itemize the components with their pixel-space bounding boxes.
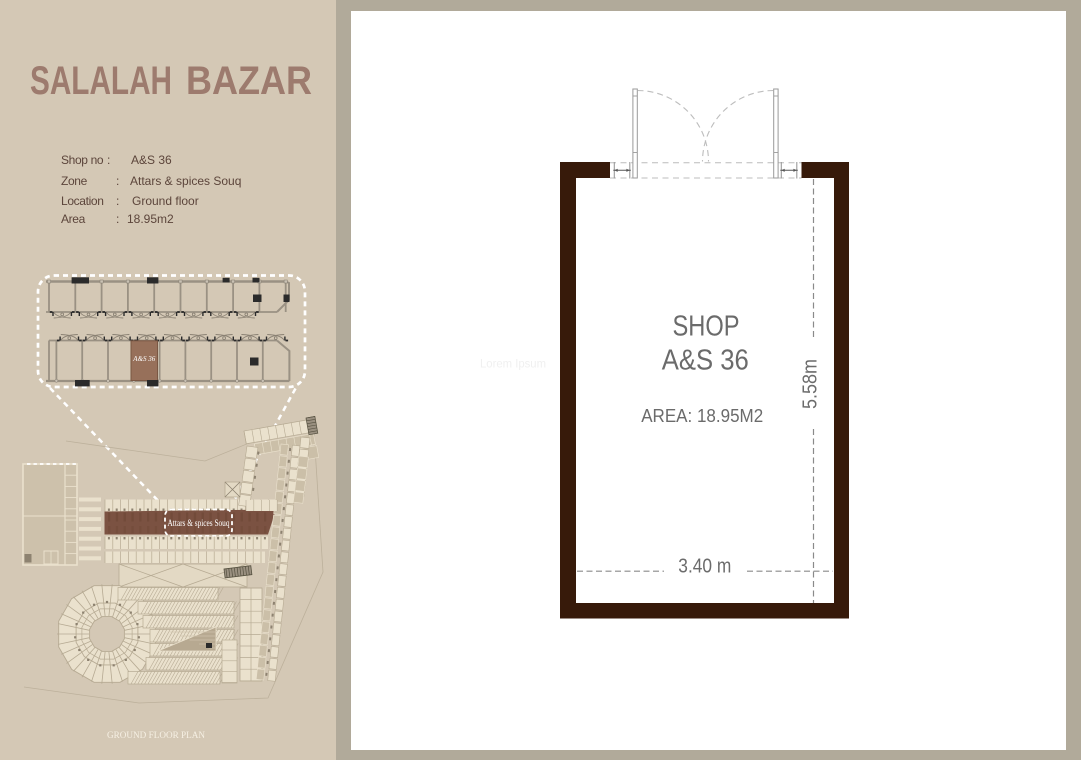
svg-text:5.58m: 5.58m xyxy=(799,359,822,409)
svg-text:3.40 m: 3.40 m xyxy=(678,554,731,577)
svg-text:AREA: 18.95M2: AREA: 18.95M2 xyxy=(641,405,763,426)
svg-text:Lorem Ipsum: Lorem Ipsum xyxy=(480,357,546,371)
svg-text:A&S 36: A&S 36 xyxy=(662,345,749,377)
svg-text:SHOP: SHOP xyxy=(673,311,740,343)
